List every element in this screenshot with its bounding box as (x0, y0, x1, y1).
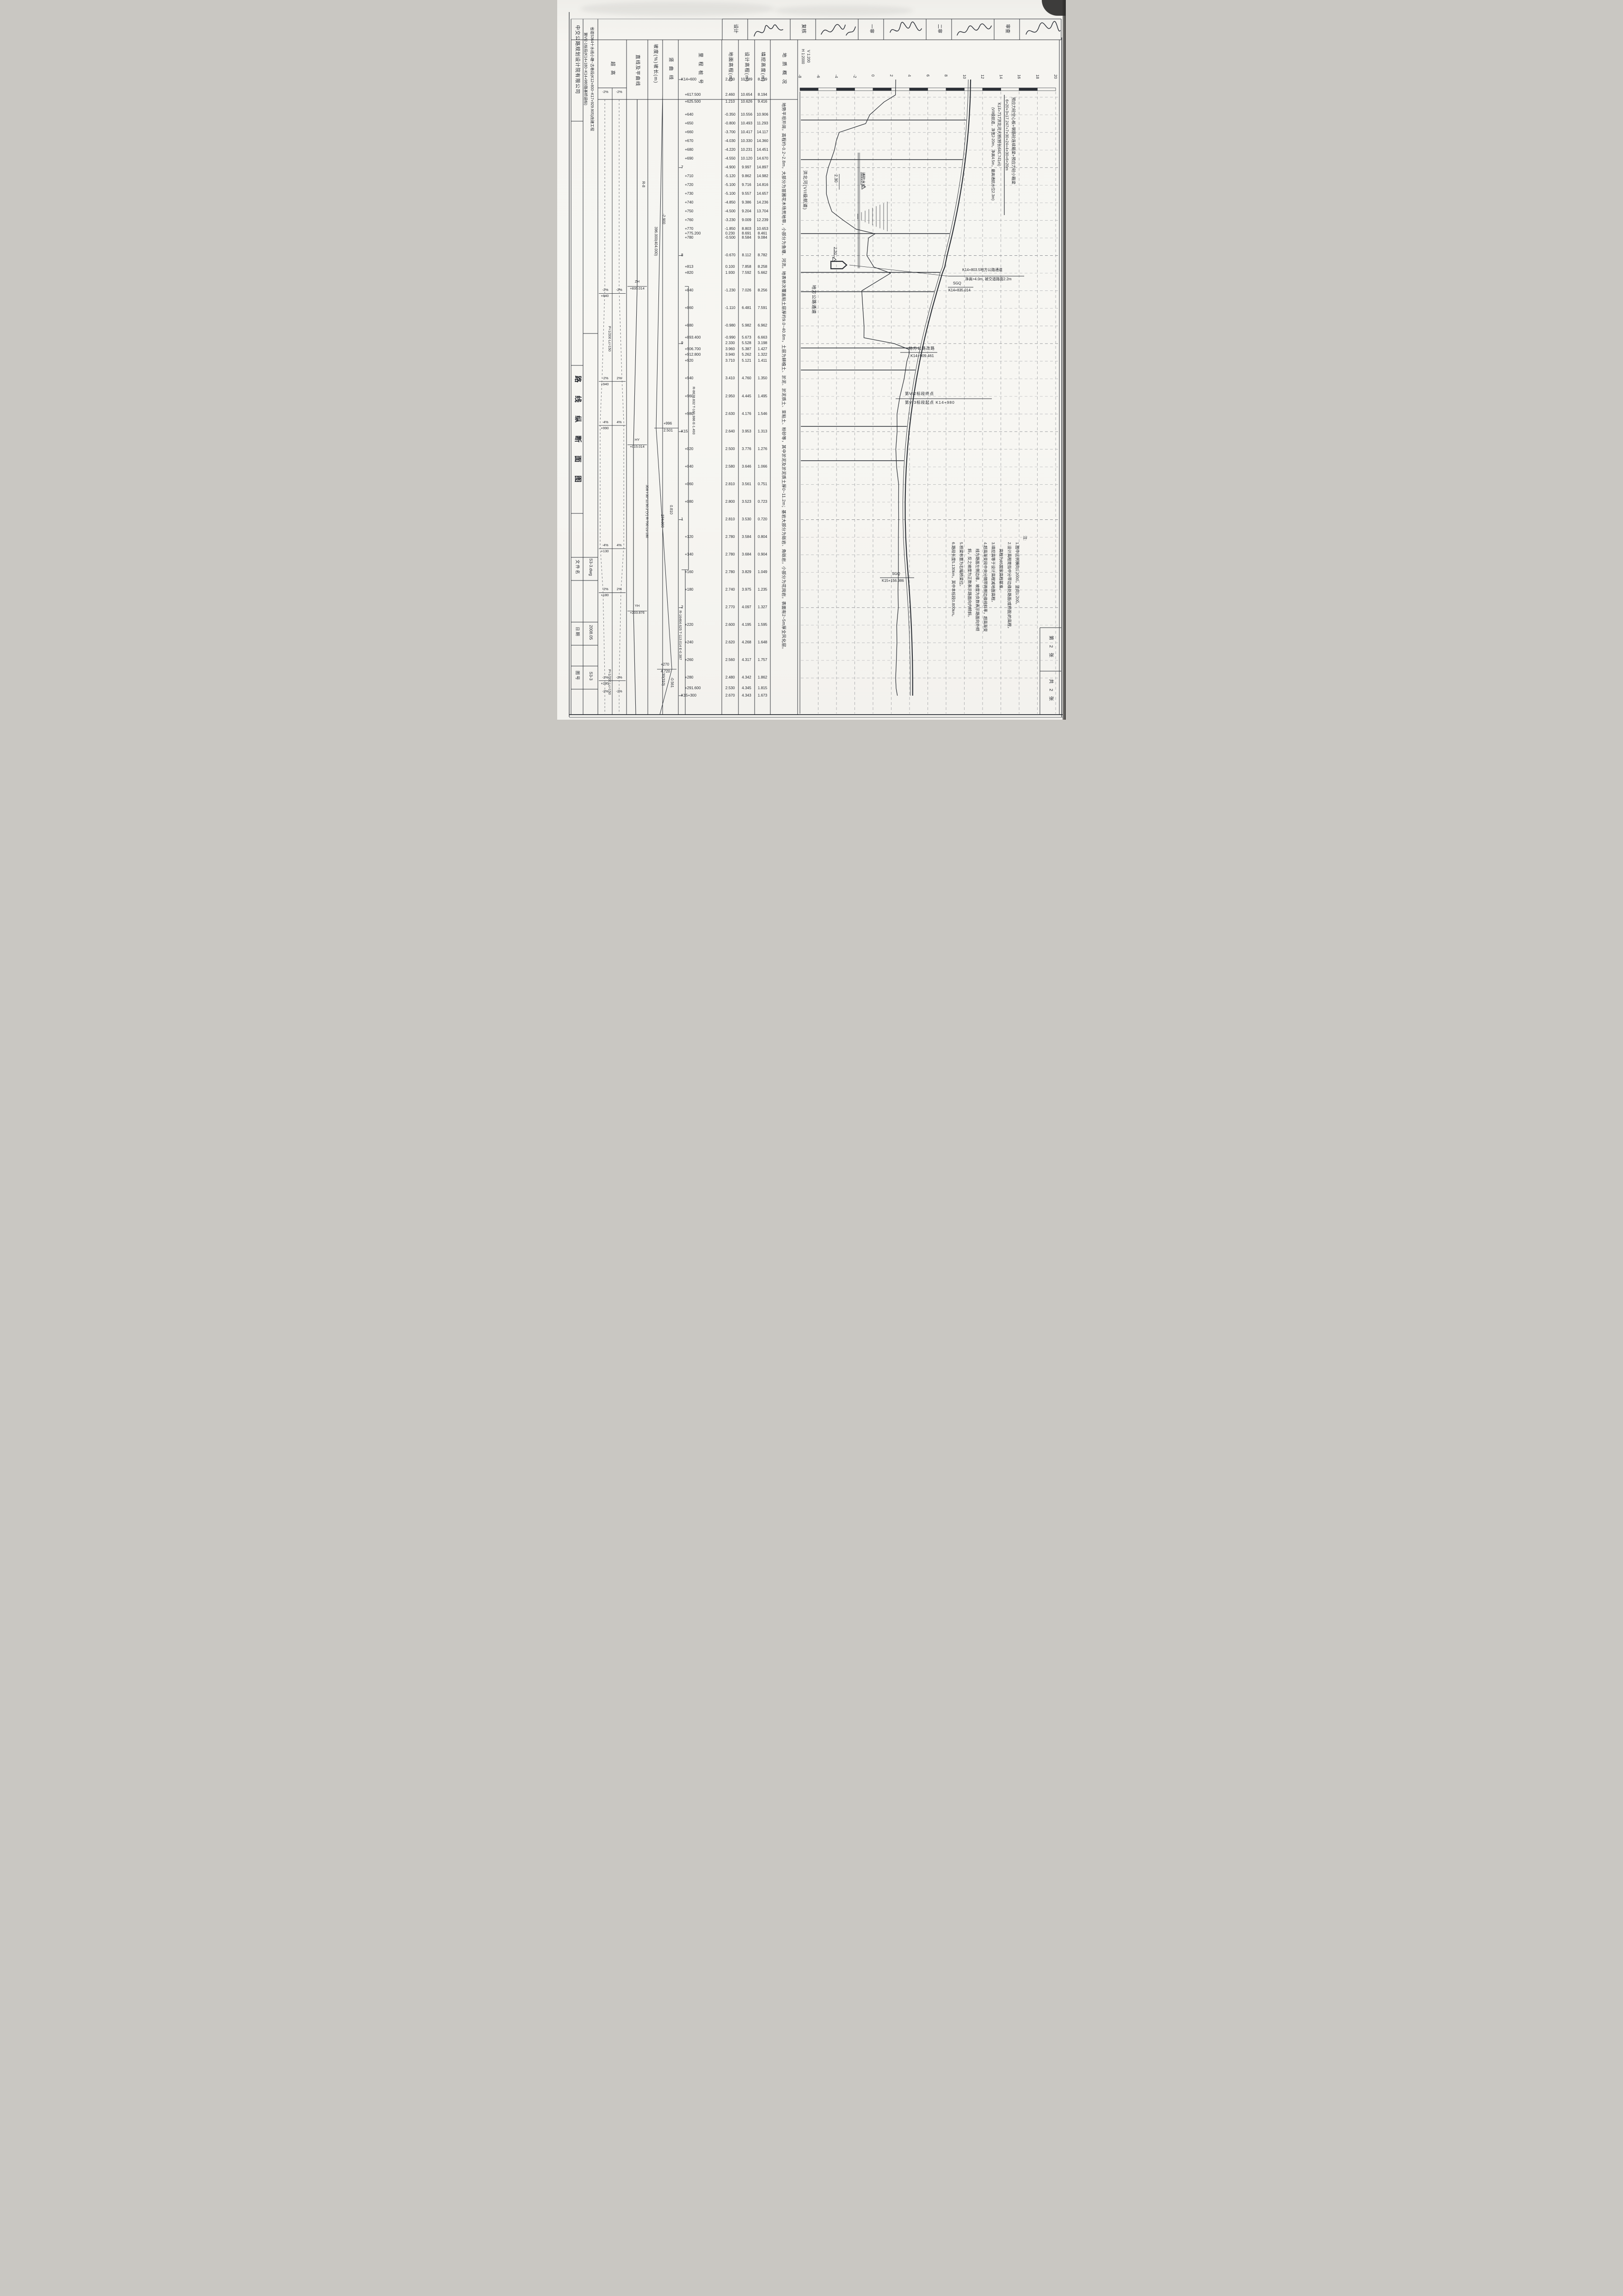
row-design-elev: 10.231 (739, 148, 754, 152)
row-cutfill: 7.591 (755, 306, 770, 310)
row-ground-elev: 2.460 (722, 93, 738, 97)
alignment-yh-code: YH (627, 604, 647, 608)
signature-scribble-icon (817, 20, 857, 39)
superelev-station: +940 (598, 383, 612, 386)
row-station: +690 (680, 157, 725, 161)
row-station: 2 (680, 605, 721, 610)
elev-scale-bar (928, 88, 947, 91)
band-header-1: 超高 (610, 62, 615, 79)
row-station: +260 (680, 658, 725, 662)
section-end-label: 第VI2标段终点 (905, 392, 934, 396)
date-value: 2008.05 (589, 625, 593, 640)
grade-segment-1 (656, 95, 663, 428)
row-design-elev: 9.997 (739, 166, 754, 170)
scanner-edge-artifact (1063, 0, 1066, 720)
row-ground-elev: 2.810 (722, 518, 738, 522)
row-design-elev: 10.493 (739, 122, 754, 126)
elev-axis-label: 2 (889, 74, 893, 77)
row-cutfill: 0.751 (755, 482, 770, 487)
local-road-label: 地方公路通道 (811, 285, 816, 314)
elev-scale-bar (891, 88, 910, 91)
row-design-elev: 9.009 (739, 218, 754, 222)
nav-water-level-value: 2.30 (834, 174, 838, 183)
bridge-span-layout: 6×20+3×17.247+7×30+24+4×30+6×20m (1005, 99, 1009, 171)
row-cutfill: 9.416 (755, 100, 770, 104)
row-ground-elev: -4.500 (722, 210, 738, 214)
section-start-label: 第VI3标段起点 K14+980 (905, 401, 955, 405)
pvi-2-station: +270 (661, 663, 669, 667)
underpass-note-line2: 净高>4.0m, 被交道路面2.2m (965, 278, 1012, 281)
row-design-elev: 3.953 (739, 430, 754, 434)
elev-scale-bar (873, 88, 891, 91)
row-ground-elev: -4.220 (722, 148, 738, 152)
row-ground-elev: -4.900 (722, 166, 738, 170)
row-design-elev: 5.387 (739, 347, 754, 352)
bridge-name-station: K14+717洪北河大桥(桥长645.741m) (997, 103, 1002, 166)
row-ground-elev: 2.640 (722, 430, 738, 434)
alignment-yh-station: +203.876 (626, 611, 649, 615)
row-design-elev: 10.626 (739, 100, 754, 104)
row-design-elev: 10.417 (739, 130, 754, 135)
row-station: +280 (680, 676, 725, 680)
row-ground-elev: -5.100 (722, 183, 738, 187)
underpass-note-leader (849, 265, 948, 276)
row-ground-elev: 2.530 (722, 686, 738, 691)
grade-1-length: 396.000(404.000) (654, 227, 658, 256)
elev-axis-label: -4 (835, 74, 839, 78)
note-line-4: 3.填挖高等于设计高程减地面高程。 (991, 542, 996, 605)
grade-segment-2 (656, 428, 672, 669)
elev-scale-bar (1019, 88, 1038, 91)
note-line-0: 注: (1023, 536, 1027, 541)
superelev-edge-right (619, 99, 624, 714)
superelev-right: 4% (613, 420, 626, 424)
row-ground-elev: -5.120 (722, 174, 738, 179)
underpass-note-line1: K14+803.5地方公路通道 (962, 268, 1002, 272)
row-station: +906.700 (680, 347, 725, 352)
elev-axis-label: 16 (1017, 74, 1021, 79)
row-ground-elev: 1.210 (722, 100, 738, 104)
note-line-3: 高程为85国家高程基准。 (999, 549, 1003, 592)
row-cutfill: 1.327 (755, 605, 770, 610)
row-design-elev: 10.120 (739, 157, 754, 161)
row-ground-elev: -0.670 (722, 253, 738, 258)
pvi-1-station: +996 (664, 422, 672, 426)
scale-vertical: V 1:200 (806, 50, 810, 63)
note-line-1: 1.图中比例横向1:2000，竖向1:200。 (1015, 542, 1019, 606)
sheet-current: 第 2 张 (1048, 636, 1053, 659)
elev-scale-bar (965, 88, 983, 91)
signature-scribble-icon (1021, 20, 1061, 39)
row-cutfill: 14.117 (755, 130, 770, 135)
river-label: 洪北河(VII级航道) (803, 170, 807, 210)
row-ground-elev: -0.500 (722, 236, 738, 240)
superelev-right: -2% (613, 690, 626, 693)
elev-axis-label: 4 (908, 74, 912, 77)
nav-water-level-label: 通航水位 (861, 172, 866, 188)
row-cutfill: 5.662 (755, 271, 770, 275)
underpass-box (831, 261, 847, 269)
row-ground-elev: -3.700 (722, 130, 738, 135)
row-station: +740 (680, 201, 725, 205)
superelev-left: -2% (599, 376, 612, 380)
row-station: +220 (680, 623, 725, 627)
row-design-elev: 9.557 (739, 192, 754, 196)
row-design-elev: 10.330 (739, 139, 754, 143)
note-line-2: 2.设计高程是指中分带边缘处路面(或桥面)的高程， (1007, 542, 1011, 630)
row-station: +750 (680, 210, 725, 214)
band-header-4: 竖曲线 (668, 57, 673, 84)
row-design-elev: 4.445 (739, 395, 754, 399)
alignment-hy-station: +015.014 (626, 445, 649, 449)
row-ground-elev: 2.780 (722, 570, 738, 574)
row-station: +060 (680, 482, 725, 487)
elev-scale-bar (800, 88, 818, 91)
elev-scale-bar (1001, 88, 1020, 91)
elev-axis-label: 12 (981, 74, 985, 79)
row-station: K14+600 (680, 78, 721, 82)
row-ground-elev: 3.710 (722, 359, 738, 363)
row-ground-elev: 2.630 (722, 412, 738, 416)
superelev-right: 2% (613, 587, 626, 591)
row-station: +670 (680, 139, 725, 143)
row-station: +140 (680, 553, 725, 557)
sheet-total: 共 2 张 (1048, 679, 1053, 703)
row-ground-elev: 2.810 (722, 482, 738, 487)
row-cutfill: 1.495 (755, 395, 770, 399)
pvi-1-elevation: 2.501 (664, 429, 673, 432)
row-design-elev: 8.803 (739, 227, 754, 231)
elev-scale-bar (983, 88, 1001, 91)
signature-scribble-icon (749, 20, 789, 39)
row-cutfill: 1.313 (755, 430, 770, 434)
row-station: +180 (680, 588, 725, 592)
row-cutfill: 10.906 (755, 113, 770, 117)
approval-label-5: 审查 (1005, 24, 1009, 33)
row-cutfill: 10.653 (755, 227, 770, 231)
row-cutfill: 14.670 (755, 157, 770, 161)
superelev-left: -2% (599, 90, 612, 94)
sgq2-station: K15+156.986 (882, 579, 904, 583)
superelev-right: -2% (613, 288, 626, 292)
alignment-spiral-2 (633, 611, 636, 715)
row-design-elev: 3.975 (739, 588, 754, 592)
row-cutfill: 8.194 (755, 93, 770, 97)
row-station: +720 (680, 183, 725, 187)
approval-label-3: 一审 (869, 24, 873, 33)
row-station: +980 (680, 412, 725, 416)
row-ground-elev: -5.100 (722, 192, 738, 196)
row-cutfill: 14.897 (755, 166, 770, 170)
row-cutfill: 14.451 (755, 148, 770, 152)
superelev-left: -4% (599, 543, 612, 547)
elev-scale-bar (836, 88, 855, 91)
row-cutfill: 1.595 (755, 623, 770, 627)
row-cutfill: 1.276 (755, 447, 770, 451)
row-station: +020 (680, 447, 725, 451)
row-ground-elev: -1.230 (722, 289, 738, 293)
row-design-elev: 3.561 (739, 482, 754, 487)
row-cutfill: 14.360 (755, 139, 770, 143)
band-header-2: 直线及平曲线 (635, 55, 639, 86)
row-ground-elev: -1.850 (722, 227, 738, 231)
signature-scribble-icon (953, 20, 993, 39)
elev-axis-label: 14 (999, 74, 1003, 79)
elev-axis-label: -6 (816, 74, 820, 78)
row-ground-elev: 2.770 (722, 605, 738, 610)
row-cutfill: 8.199 (755, 78, 770, 82)
elev-scale-bar (910, 88, 928, 91)
row-station: +780 (680, 236, 725, 240)
row-design-elev: 10.556 (739, 113, 754, 117)
file-label: 文件名 (575, 560, 579, 575)
sgq1-label: SGQ (953, 282, 961, 285)
row-ground-elev: -0.990 (722, 336, 738, 340)
row-station: +730 (680, 192, 725, 196)
grade-2-length: 274.000 (660, 514, 664, 528)
row-station: +760 (680, 218, 725, 222)
row-cutfill: 8.256 (755, 289, 770, 293)
row-station: 9 (680, 341, 721, 346)
alignment-radius-note: R-8 (641, 181, 645, 187)
superelev-station: +840 (598, 294, 612, 298)
road-change-station: K14+909.461 (910, 354, 934, 358)
row-cutfill: 1.757 (755, 658, 770, 662)
row-cutfill: 13.704 (755, 210, 770, 214)
superelev-right: 2% (613, 376, 626, 380)
row-ground-elev: -0.350 (722, 113, 738, 117)
row-cutfill: 1.427 (755, 347, 770, 352)
row-cutfill: 8.782 (755, 253, 770, 258)
row-cutfill: 1.862 (755, 676, 770, 680)
grade-2-value: 0.810 (669, 505, 673, 514)
row-ground-elev: 2.800 (722, 500, 738, 504)
elev-axis-label: -2 (853, 74, 857, 78)
row-station: +960 (680, 395, 725, 399)
row-cutfill: 14.657 (755, 192, 770, 196)
ground-line (826, 80, 909, 696)
row-ground-elev: -3.230 (722, 218, 738, 222)
elev-scale-bar (946, 88, 965, 91)
row-cutfill: 1.350 (755, 376, 770, 381)
approval-label-4: 二审 (937, 24, 941, 33)
signature-scribble-icon (885, 20, 925, 39)
superelev-transition-note: P=1/200 Lc=150 (608, 326, 612, 352)
row-design-elev: 3.829 (739, 570, 754, 574)
band-header-9: 地质概况 (781, 53, 786, 88)
grade-3-length: 30(310) (661, 673, 665, 686)
row-cutfill: 1.411 (755, 359, 770, 363)
bridge-superstructure-note: 预应力砼空心板+钢筋砼连续箱梁+预应力砼小箱梁 (1012, 97, 1016, 184)
note-line-5: 4.超高渐变段中央分隔带两侧边缘线斜率，超高渐变 (984, 542, 988, 632)
row-ground-elev: 2.670 (722, 694, 738, 698)
row-design-elev: 9.862 (739, 174, 754, 179)
row-ground-elev: 2.780 (722, 535, 738, 539)
row-station: K15 (680, 430, 721, 434)
row-design-elev: 7.592 (739, 271, 754, 275)
project-name-line1: 省道S364十水线小塘~古巷段(K12+800~K17+929.905)改建工程 (590, 27, 594, 131)
row-cutfill: 8.258 (755, 265, 770, 269)
row-design-elev: 7.858 (739, 265, 754, 269)
row-ground-elev: 2.580 (722, 465, 738, 469)
band-header-3: 坡度(%)坡长(m) (653, 44, 658, 84)
superelev-edge-left (600, 99, 605, 714)
sgq1-station: K14+835.014 (948, 289, 971, 292)
bridge-clearance-note: (VII级航道，净宽2-20m，净高4.5m，最高通航水位2.3m) (991, 107, 995, 200)
row-cutfill: 1.673 (755, 694, 770, 698)
row-ground-elev: -4.850 (722, 201, 738, 205)
row-station: +040 (680, 465, 725, 469)
row-design-elev: 9.204 (739, 210, 754, 214)
elev-scale-bar (855, 88, 873, 91)
row-cutfill: 6.663 (755, 336, 770, 340)
row-design-elev: 8.112 (739, 253, 754, 258)
row-design-elev: 8.584 (739, 236, 754, 240)
superelev-right: 4% (613, 543, 626, 547)
row-design-elev: 6.481 (739, 306, 754, 310)
row-cutfill: 6.962 (755, 324, 770, 328)
row-station: +291.600 (680, 686, 725, 691)
elev-scale-bar (1038, 88, 1056, 91)
sheet-no-label: 图号 (575, 671, 579, 681)
row-cutfill: 14.982 (755, 174, 770, 179)
row-cutfill: 0.804 (755, 535, 770, 539)
file-value: S3-3.dwg (589, 558, 593, 576)
row-design-elev: 4.342 (739, 676, 754, 680)
sgq2-label: SGQ (892, 572, 900, 576)
row-ground-elev: -4.550 (722, 157, 738, 161)
row-station: 7 (680, 166, 721, 170)
scale-horizontal: H 1:2000 (801, 49, 805, 64)
scanned-profile-drawing: 中交公路规划设计院有限公司 省道S364十水线小塘~古巷段(K12+800~K1… (557, 0, 1066, 720)
vertical-curve-2-data: R-16464.625 T-113.014 E-0.387 (679, 611, 682, 660)
superelev-right: -2% (613, 90, 626, 94)
superelev-station: +990 (598, 426, 612, 430)
row-station: +920 (680, 359, 725, 363)
elev-axis-label: 18 (1035, 74, 1039, 79)
row-station: +820 (680, 271, 725, 275)
row-ground-elev: 2.620 (722, 641, 738, 645)
elev-axis-label: 20 (1054, 74, 1058, 79)
row-design-elev: 9.386 (739, 201, 754, 205)
row-ground-elev: 2.330 (722, 341, 738, 346)
row-design-elev: 3.523 (739, 500, 754, 504)
row-cutfill: 1.066 (755, 465, 770, 469)
row-design-elev: 4.760 (739, 376, 754, 381)
row-cutfill: 1.648 (755, 641, 770, 645)
row-station: 8 (680, 253, 721, 258)
row-ground-elev: -0.980 (722, 324, 738, 328)
row-station: +912.800 (680, 353, 725, 357)
row-ground-elev: -0.800 (722, 122, 738, 126)
row-design-elev: 5.121 (739, 359, 754, 363)
row-cutfill: 1.322 (755, 353, 770, 357)
row-cutfill: 1.546 (755, 412, 770, 416)
row-station: +940 (680, 376, 725, 381)
superelev-left: -2% (599, 288, 612, 292)
design-grade-line-edge (903, 80, 969, 696)
note-line-9: 6.路段长度5.130km，其中本标段0.800km。 (952, 542, 956, 619)
row-design-elev: 3.530 (739, 518, 754, 522)
band-header-5: 里程桩号 (698, 53, 702, 88)
row-ground-elev: 2.950 (722, 395, 738, 399)
alignment-zh-station: +835.014 (626, 287, 649, 290)
row-design-elev: 5.982 (739, 324, 754, 328)
elev-axis-label: 8 (944, 74, 948, 77)
row-station: +640 (680, 113, 725, 117)
alignment-zh-code: ZH (627, 280, 647, 284)
row-design-elev: 5.262 (739, 353, 754, 357)
row-design-elev: 4.097 (739, 605, 754, 610)
drawing-title: 路 线 纵 断 面 图 (574, 376, 581, 488)
superelev-station: +180 (598, 593, 612, 597)
approval-label-2: 复核 (801, 24, 805, 33)
row-station: +240 (680, 641, 725, 645)
superelev-transition-note: P=1/200 Lc=150 (608, 669, 612, 695)
row-cutfill: 11.293 (755, 122, 770, 126)
row-cutfill: 1.235 (755, 588, 770, 592)
elev-scale-bar (818, 88, 837, 91)
horizontal-curve-note: JD8 I-30°11′30.2″(Y) R-700 Ls-180 (646, 485, 649, 538)
row-design-elev: 4.317 (739, 658, 754, 662)
row-ground-elev: 2.490 (722, 78, 738, 82)
alignment-spiral (633, 286, 637, 445)
row-design-elev: 3.776 (739, 447, 754, 451)
geology-description: 地势平坦开阔，高程约-0.2~2.8m，大部分为苗圃花木场荒地带，小部分为鱼塘、… (781, 103, 786, 652)
note-line-8: 5.桥梁布置为右幅桥梁位。 (959, 542, 964, 589)
superelev-station: +130 (598, 549, 612, 553)
row-design-elev: 4.176 (739, 412, 754, 416)
elev-axis-label: 6 (926, 74, 930, 77)
row-design-elev: 10.689 (739, 78, 754, 82)
row-station: K15+300 (680, 694, 721, 698)
row-station: +650 (680, 122, 725, 126)
grade-3-value: -0.561 (670, 677, 674, 688)
row-ground-elev: -1.110 (722, 306, 738, 310)
row-ground-elev: 2.740 (722, 588, 738, 592)
date-label: 日期 (575, 627, 579, 637)
row-design-elev: 4.268 (739, 641, 754, 645)
pvi-2-elevation: 4.720 (661, 670, 670, 673)
row-ground-elev: 2.480 (722, 676, 738, 680)
row-station: +080 (680, 500, 725, 504)
row-design-elev: 3.684 (739, 553, 754, 557)
row-station: +120 (680, 535, 725, 539)
row-cutfill: 3.198 (755, 341, 770, 346)
row-ground-elev: 2.780 (722, 553, 738, 557)
row-station: +860 (680, 306, 725, 310)
elev-axis-label: -8 (798, 74, 802, 78)
row-ground-elev: 3.410 (722, 376, 738, 381)
grade-1-value: -2.900 (662, 214, 665, 224)
row-station: +660 (680, 130, 725, 135)
elev-axis-label: 0 (871, 74, 875, 77)
superelev-left: -4% (599, 420, 612, 424)
row-station: +770 (680, 227, 725, 231)
row-design-elev: 5.673 (739, 336, 754, 340)
row-station: +625.500 (680, 100, 725, 104)
row-ground-elev: 2.600 (722, 623, 738, 627)
row-design-elev: 4.345 (739, 686, 754, 691)
sheet-no-value: S3-3 (589, 672, 593, 680)
row-design-elev: 3.646 (739, 465, 754, 469)
row-cutfill: 14.236 (755, 201, 770, 205)
row-station: +680 (680, 148, 725, 152)
alignment-hy-code: HY (627, 438, 647, 442)
note-line-7: 斜，反之坡度为正数表示路面向内倾斜。 (967, 549, 971, 619)
approval-label-1: 设计 (733, 24, 738, 33)
row-cutfill: 9.084 (755, 236, 770, 240)
